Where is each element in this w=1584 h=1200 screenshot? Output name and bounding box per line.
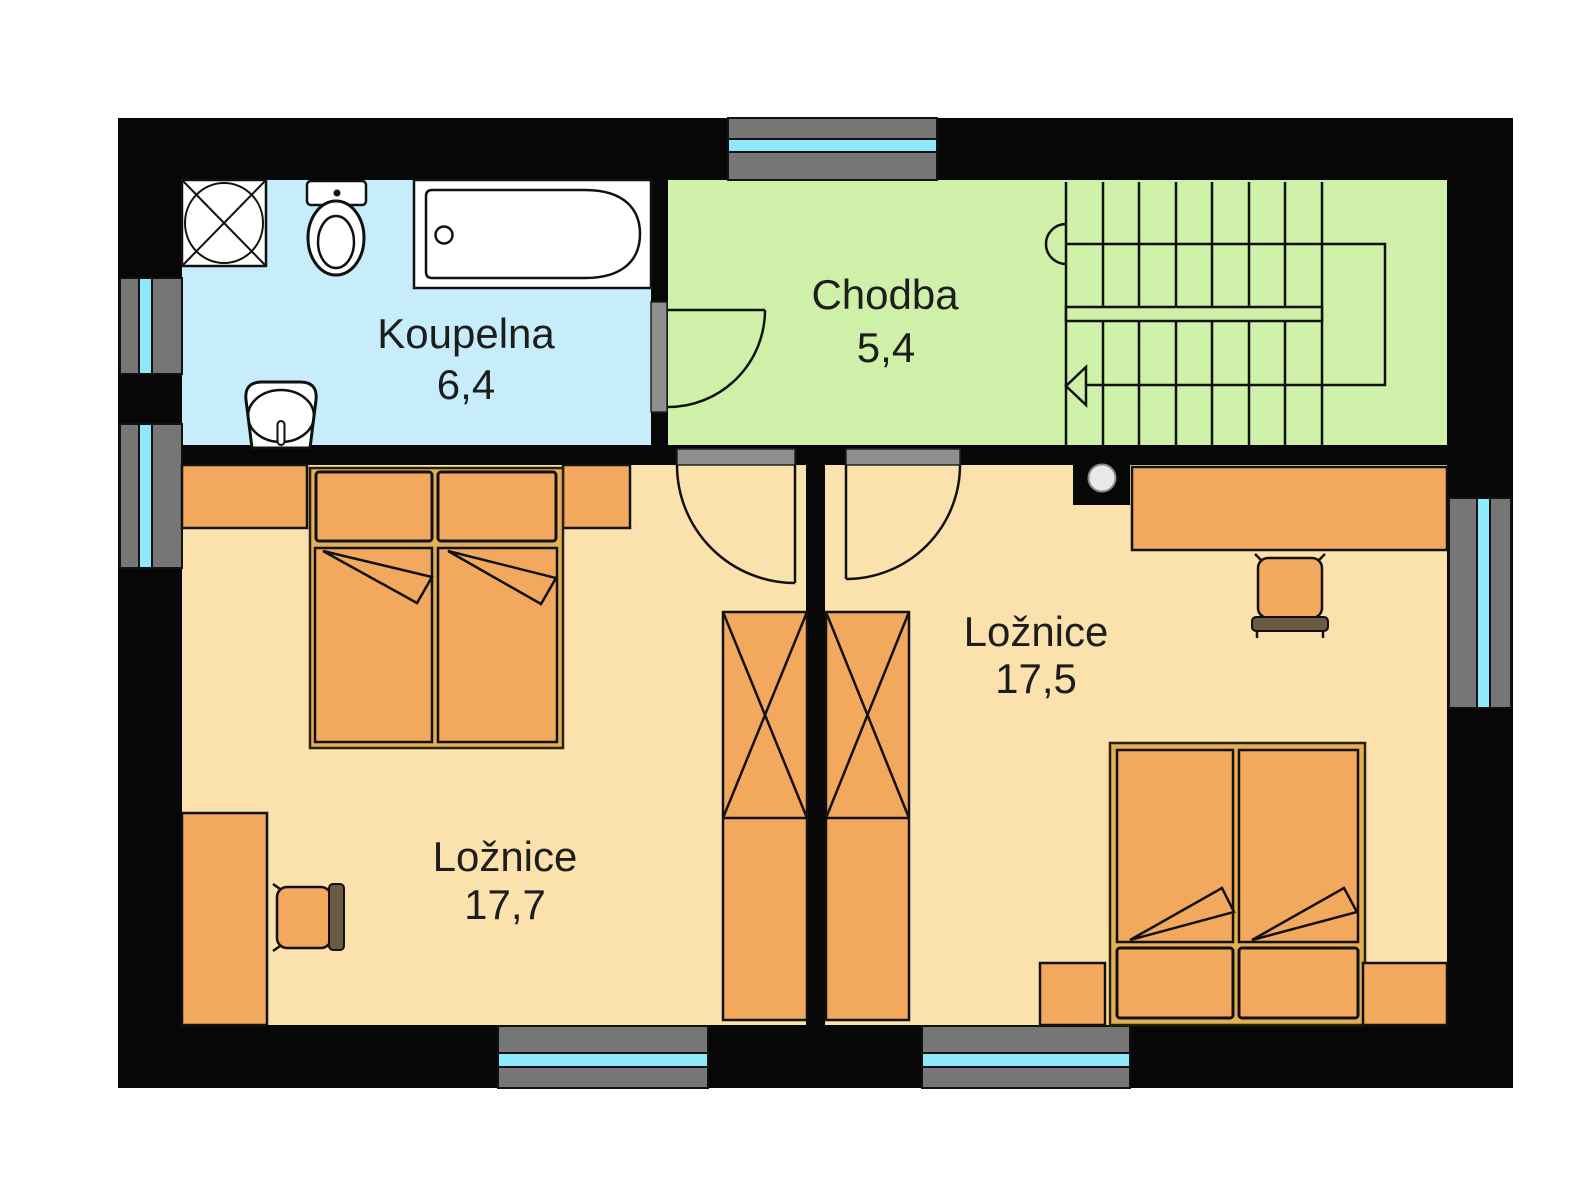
bathtub-icon: [414, 180, 651, 288]
nightstand-left: [1040, 963, 1105, 1025]
label-bathroom-area: 6,4: [437, 361, 495, 408]
window-bottom-right: [922, 1026, 1130, 1088]
wall-bedroom-divider: [806, 465, 825, 1025]
pillow: [438, 472, 556, 541]
room-hallway-floor: [668, 180, 1447, 445]
label-bathroom-name: Koupelna: [377, 310, 555, 357]
label-bedroom-left-name: Ložnice: [433, 833, 578, 880]
pillow: [1117, 948, 1233, 1018]
window-bottom-left: [498, 1026, 708, 1088]
wall-horizontal-divider: [182, 445, 1447, 465]
dresser-right: [563, 465, 630, 528]
door-opening-bathroom: [651, 302, 667, 412]
door-opening-bedroom-left: [677, 449, 795, 465]
label-hallway-area: 5,4: [857, 324, 915, 371]
chair: [1252, 554, 1328, 638]
window-right-bedroom: [1449, 498, 1511, 708]
window-top: [728, 118, 937, 180]
door-opening-bedroom-right: [846, 449, 960, 465]
desk: [1132, 467, 1447, 550]
wardrobe-left: [723, 612, 807, 1020]
toilet-icon: [307, 181, 366, 275]
floor-plan: Koupelna 6,4 Chodba 5,4 Ložnice 17,7 Lož…: [0, 0, 1584, 1200]
window-left-bedroom: [120, 424, 182, 568]
label-bedroom-right-area: 17,5: [995, 655, 1077, 702]
pillow: [1239, 948, 1358, 1018]
dresser-left: [182, 465, 307, 528]
nightstand-right: [1363, 963, 1447, 1025]
wardrobe-right: [826, 612, 909, 1020]
sink-icon: [246, 382, 316, 448]
label-hallway-name: Chodba: [811, 271, 959, 318]
label-bedroom-right-name: Ložnice: [964, 608, 1109, 655]
window-left-bathroom: [120, 278, 182, 374]
pillow: [316, 472, 432, 541]
chimney: [1073, 450, 1130, 505]
shower-icon: [182, 180, 266, 266]
desk: [182, 813, 267, 1025]
chair: [273, 884, 344, 951]
label-bedroom-left-area: 17,7: [464, 881, 546, 928]
